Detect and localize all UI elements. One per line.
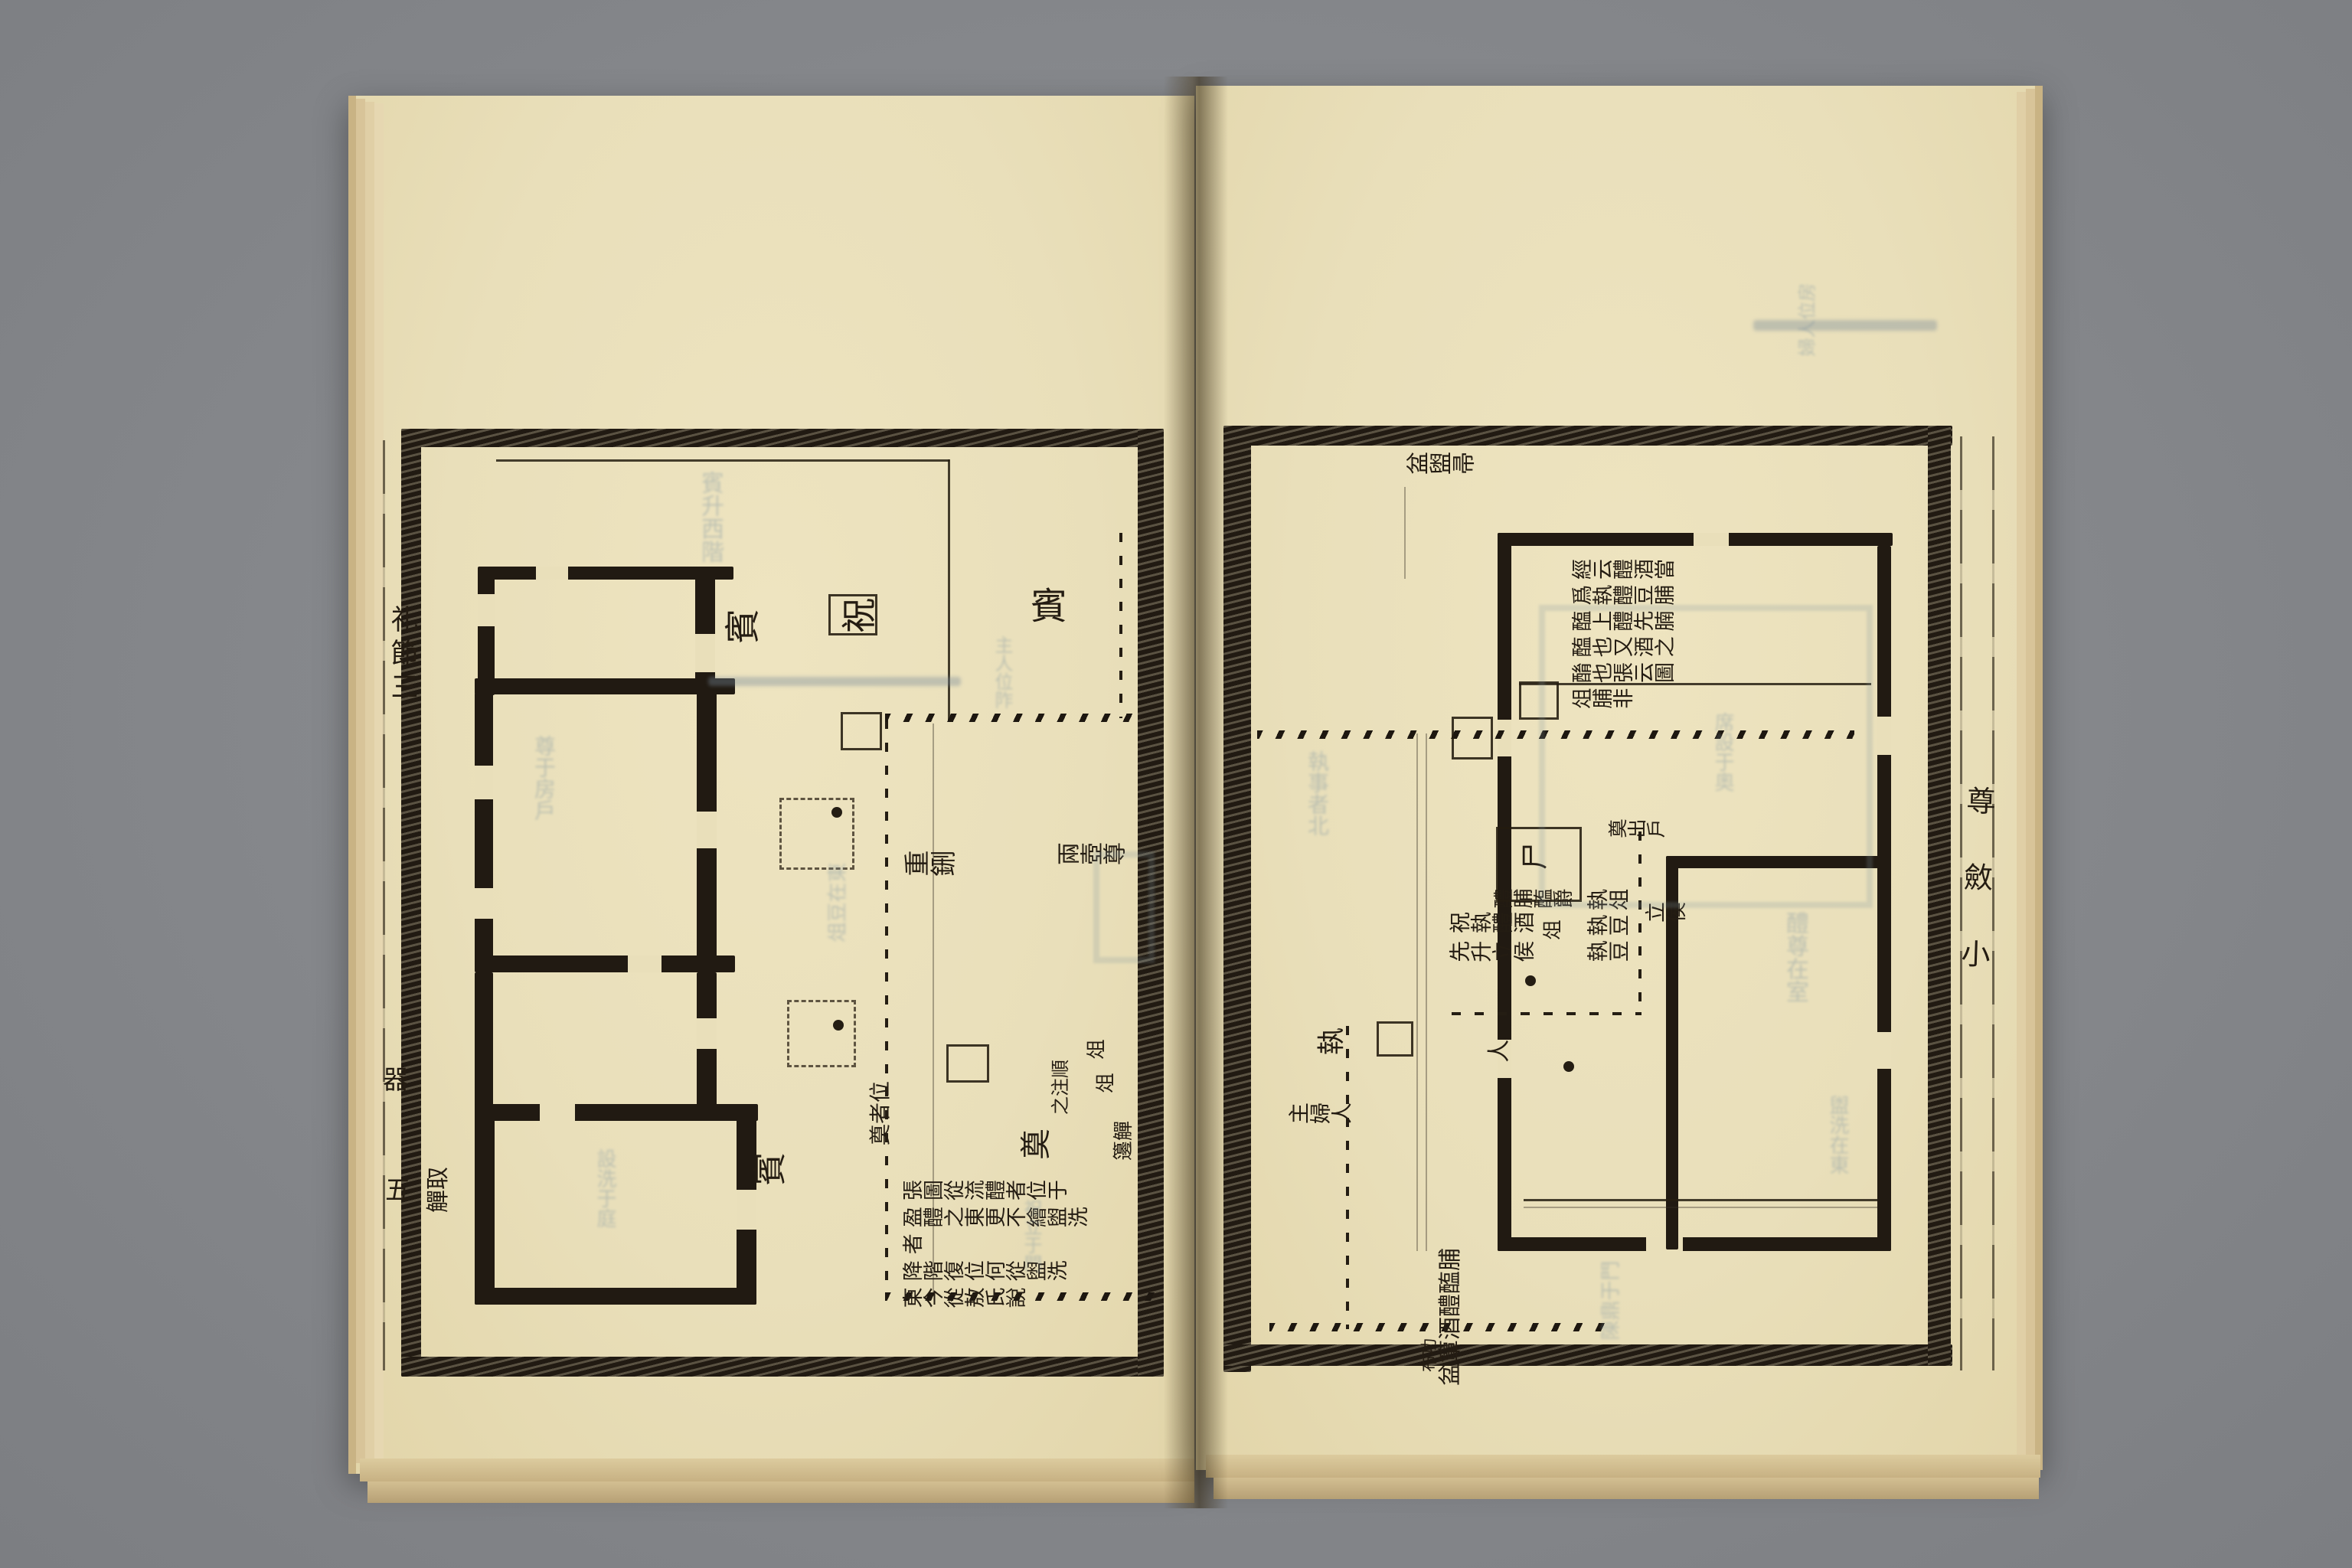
- label-invocator: 祝: [840, 598, 880, 633]
- annotation-line: 盈醴之東更不繪盥洗者: [902, 1206, 1090, 1259]
- annotation-line: 東今從敖氏說: [902, 1286, 1090, 1313]
- door-gap: [1877, 717, 1891, 755]
- room-wall: [475, 693, 493, 959]
- label-guest-nw: 賓: [724, 609, 763, 644]
- photo-of-open-book: 礼節三 器 五 觶取 賓 祝 賓 賓 重鉶: [0, 0, 2352, 1568]
- fragment-stand-a: 俎: [1086, 1040, 1108, 1060]
- annotation-line: 執豆: [1586, 939, 1648, 965]
- ghost-text: 盥洗在東: [1824, 1095, 1852, 1174]
- right-diagram-border-top: [1223, 426, 1952, 446]
- room-wall: [478, 567, 495, 695]
- chamber-wall: [1877, 546, 1891, 1251]
- label-guest-ne: 賓: [1031, 586, 1067, 628]
- west-stairs-box: [946, 1044, 989, 1083]
- door-gap: [478, 594, 495, 626]
- page-edge-stack: [356, 99, 365, 1463]
- label-vessels-center: 重鉶: [903, 851, 988, 885]
- door-gap: [475, 888, 493, 919]
- right-diagram-border-bottom: [1223, 1344, 1952, 1366]
- room-wall: [475, 1104, 758, 1121]
- courtyard-dashed-line: [885, 720, 888, 1298]
- annotation-line: 先升立侯: [1449, 939, 1548, 968]
- ghost-text: 醴尊在室: [1778, 911, 1811, 1003]
- courtyard-dashed-line: [1346, 1026, 1349, 1329]
- left-diagram-border-bottom: [401, 1357, 1164, 1377]
- label-person: 人: [1487, 1040, 1513, 1063]
- ghost-text: 執事者北: [1302, 750, 1332, 836]
- door-gap: [628, 955, 661, 972]
- fragment-cups: 籩觶: [1113, 1090, 1144, 1161]
- room-wall: [475, 972, 493, 1109]
- left-diagram-border-left: [401, 429, 421, 1377]
- room-wall: [475, 1288, 756, 1305]
- right-bottom-edge: [1214, 1478, 2039, 1499]
- door-gap: [737, 1190, 756, 1230]
- dashed-position-box: [779, 798, 854, 870]
- position-marker-dot: [1525, 975, 1536, 986]
- ghost-text: 祝立于門: [1018, 1199, 1045, 1272]
- left-diagram-border-top: [401, 429, 1164, 447]
- door-gap: [475, 766, 493, 799]
- annotation-line: 經云醴酒當: [1571, 559, 1762, 585]
- courtyard-dashed-line: [1119, 533, 1122, 718]
- margin-rule: [383, 440, 385, 1370]
- annotation-line: 張圖從流醴者位于: [902, 1179, 1090, 1206]
- ghost-text: 俎豆在東: [822, 862, 851, 942]
- stairs-box: [1452, 717, 1493, 759]
- ghost-box: [1539, 605, 1873, 908]
- door-gap: [697, 812, 717, 848]
- left-annotation-block: 張圖從流醴者位于 盈醴之東更不繪盥洗者 降階復位何從盥洗 東今從敖氏說: [902, 1179, 1090, 1294]
- left-bottom-edge: [367, 1481, 1194, 1503]
- right-diagram-border-right: [1928, 426, 1951, 1366]
- ghost-smear: [708, 677, 961, 686]
- book-gutter: [1164, 77, 1228, 1508]
- label-guest-sw: 賓: [751, 1152, 789, 1186]
- door-gap: [1877, 1032, 1891, 1069]
- label-holder: 執: [1317, 1027, 1347, 1055]
- left-margin-char-b: 五: [385, 1176, 411, 1205]
- door-gap: [1694, 533, 1729, 546]
- label-basin-nw: 盆盥帚: [1406, 453, 1521, 487]
- margin-rule: [1992, 436, 1994, 1370]
- door-gap: [695, 634, 715, 672]
- right-margin-chars: 尊斂小: [1955, 785, 1995, 1015]
- fragment-positions: 奠者位: [868, 1046, 902, 1145]
- right-bottom-edge: [1206, 1455, 2040, 1478]
- room-wall: [475, 955, 735, 972]
- ghost-text: 尊于房戶: [528, 735, 559, 821]
- position-marker-dot: [831, 807, 842, 818]
- position-marker-dot: [1563, 1061, 1574, 1072]
- page-edge-stack: [2035, 86, 2043, 1470]
- page-edge-stack: [348, 96, 356, 1474]
- page-edge-stack: [365, 102, 374, 1466]
- ghost-text: 陳鼎于門: [1596, 1260, 1624, 1340]
- label-mistress: 主婦人: [1288, 1102, 1380, 1133]
- ghost-smear: [1753, 320, 1937, 331]
- position-dashed-line: [1452, 1012, 1641, 1015]
- door-gap: [540, 1104, 575, 1121]
- left-bottom-edge: [360, 1459, 1194, 1481]
- left-margin-title: 礼節三: [386, 605, 416, 706]
- page-edge-stack: [2017, 92, 2026, 1462]
- ghost-text: 主人位阼: [989, 635, 1016, 709]
- annotation-line: 執豆: [1586, 914, 1648, 940]
- label-offering: 奠: [1020, 1129, 1054, 1159]
- thin-guide-line: [1416, 733, 1418, 1251]
- door-gap: [536, 567, 568, 580]
- hall-line: [496, 459, 949, 462]
- annotation-line: 降階復位何從盥洗: [902, 1259, 1090, 1286]
- fragment-note: 之注順: [1050, 1031, 1078, 1115]
- left-margin-side-label: 觶取: [426, 1127, 459, 1213]
- label-invocator-group: 祝執醴酒 先升立侯: [1449, 910, 1548, 975]
- thin-guide-line: [1426, 733, 1427, 1251]
- ghost-text: 設洗于庭: [591, 1148, 619, 1228]
- dashed-position-box: [787, 1000, 856, 1067]
- platform-line-faint: [1524, 1207, 1877, 1208]
- stairs-box: [1377, 1021, 1413, 1057]
- position-marker-dot: [833, 1020, 844, 1031]
- door-gap: [697, 1018, 717, 1049]
- courtyard-dashed-line: [885, 714, 1142, 722]
- inventory-column-2: 布功: [1421, 1302, 1449, 1372]
- left-margin-char-a: 器: [383, 1066, 409, 1095]
- room-wall: [475, 1104, 495, 1305]
- ghost-text: 賓升西階: [693, 471, 727, 563]
- right-diagram-border-gutter: [1223, 426, 1251, 1372]
- ghost-box: [1093, 851, 1155, 963]
- thin-corner-line: [1404, 487, 1406, 579]
- page-edge-stack: [2026, 89, 2035, 1459]
- chamber-wall: [1498, 1237, 1891, 1251]
- annotation-line: 祝執醴酒: [1449, 910, 1548, 939]
- east-stairs-box: [841, 712, 882, 750]
- platform-line: [1524, 1199, 1877, 1201]
